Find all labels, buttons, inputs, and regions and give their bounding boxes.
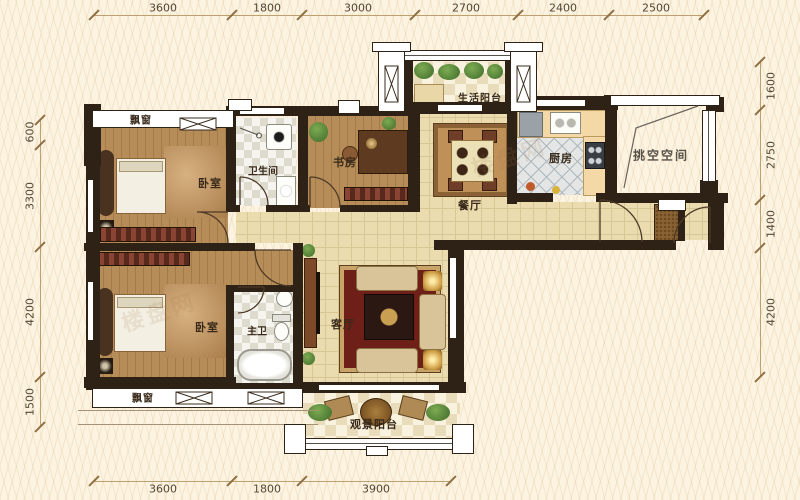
room-label-view-balcony: 观景阳台 xyxy=(350,416,398,432)
room-label-void: 挑空空间 xyxy=(633,147,689,164)
dimension-label: 3300 xyxy=(24,182,37,210)
dimension-label: 1800 xyxy=(253,483,281,496)
room-label-dining: 餐厅 xyxy=(458,197,482,213)
room-label-kitchen: 厨房 xyxy=(549,150,573,166)
door-arc-bedroom-bottom xyxy=(255,250,291,286)
room-label-study: 书房 xyxy=(333,154,357,170)
shower-point xyxy=(257,133,262,138)
dimension-label: 3600 xyxy=(149,2,177,15)
dimension-label: 1600 xyxy=(765,72,778,100)
room-label-master-bath: 主卫 xyxy=(247,323,267,338)
dimension-label: 1800 xyxy=(253,2,281,15)
floor-plan: 飘窗 卧室 卫生间 书房 生活阳台 餐厅 厨房 挑空空间 客厅 卧室 主卫 观景… xyxy=(0,0,800,500)
dimension-label: 2400 xyxy=(549,2,577,15)
door-arc-study xyxy=(310,177,340,207)
window-x-symbols xyxy=(176,66,530,404)
dimension-label: 3900 xyxy=(362,483,390,496)
room-label-life-balcony: 生活阳台 xyxy=(458,90,502,105)
doors-and-symbols xyxy=(0,0,800,500)
dimension-label: 2700 xyxy=(452,2,480,15)
door-arc-master-bath xyxy=(238,287,264,313)
dimension-label: 2500 xyxy=(642,2,670,15)
dimension-label: 1500 xyxy=(24,388,37,416)
shower-pointer xyxy=(240,128,258,135)
room-label-living: 客厅 xyxy=(331,316,355,332)
door-arc-bedroom-top xyxy=(197,212,228,243)
dimension-label: 1400 xyxy=(765,210,778,238)
room-label-bay-bottom: 飘窗 xyxy=(132,390,154,405)
dimension-label: 3000 xyxy=(344,2,372,15)
room-label-bedroom-top: 卧室 xyxy=(198,175,222,191)
room-label-bath: 卫生间 xyxy=(248,163,278,178)
door-arc-bath xyxy=(240,177,268,205)
dimension-label: 3600 xyxy=(149,483,177,496)
door-arc-kitchen xyxy=(600,200,642,242)
dimension-label: 4200 xyxy=(24,298,37,326)
dimension-label: 2750 xyxy=(765,141,778,169)
dimension-label: 600 xyxy=(24,122,37,143)
room-label-bay-top: 飘窗 xyxy=(130,112,152,127)
room-label-bedroom-bottom: 卧室 xyxy=(195,319,219,335)
dimension-label: 4200 xyxy=(765,298,778,326)
door-arc-entry xyxy=(674,207,710,243)
